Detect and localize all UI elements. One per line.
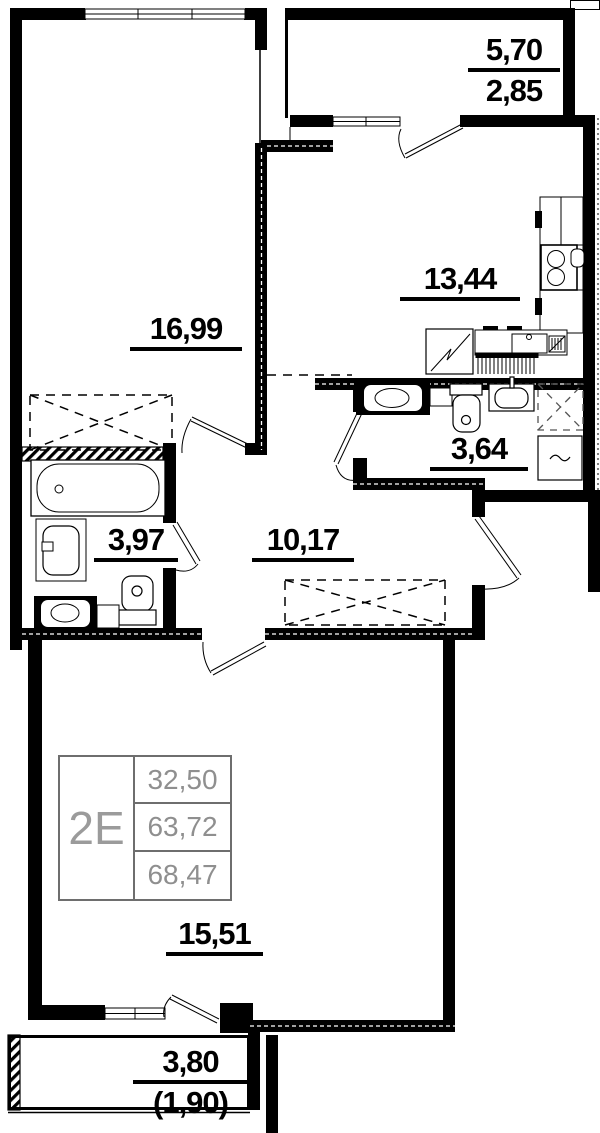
unit-type: 2E — [60, 757, 135, 899]
balcony-bottom-label: 3,80 (1,90) — [133, 1046, 248, 1118]
legend-living-area: 32,50 — [135, 757, 230, 804]
kitchen-sink-right-icon — [571, 249, 584, 267]
area-value: 3,64 — [451, 431, 507, 466]
label-underline — [430, 467, 528, 471]
area-label-room-bottom: 15,51 — [166, 918, 263, 956]
area-value: 13,44 — [424, 261, 497, 296]
balcony-reduced: (1,90) — [153, 1085, 228, 1120]
door-room-bottom — [203, 642, 266, 675]
area-value: 10,17 — [267, 522, 340, 557]
toilet-bath-icon — [119, 576, 156, 625]
kitchen-counter-bottom — [475, 330, 567, 355]
balcony-reduced: 2,85 — [486, 73, 542, 108]
door-room-top — [182, 417, 252, 453]
label-underline — [130, 347, 242, 351]
wardrobe-dashed-room-top — [30, 395, 172, 450]
area-value: 15,51 — [178, 916, 251, 951]
door-entrance — [475, 516, 521, 589]
window-room-top — [85, 9, 245, 19]
radiator-icon — [476, 353, 538, 374]
water-heater — [538, 436, 582, 480]
balcony-total: 3,80 — [162, 1044, 218, 1079]
fridge-icon — [426, 329, 473, 374]
area-value: 16,99 — [150, 311, 223, 346]
floor-plan: 16,99 13,44 3,64 3,97 10,17 15,51 5,70 2… — [0, 0, 600, 1133]
window-balcony-top — [333, 117, 400, 126]
area-label-room-top: 16,99 — [130, 313, 242, 351]
area-label-bathroom: 3,97 — [94, 524, 178, 562]
label-underline — [400, 297, 520, 301]
fraction-line — [133, 1080, 248, 1084]
area-label-wc: 3,64 — [430, 433, 528, 471]
balcony-total: 5,70 — [486, 32, 542, 67]
area-label-hall: 10,17 — [252, 524, 354, 562]
wardrobe-dashed-hall — [285, 580, 445, 625]
fraction-line — [468, 68, 560, 72]
window-room-bottom — [105, 1008, 165, 1019]
washbasin-bath-icon — [36, 519, 86, 581]
label-underline — [94, 558, 178, 562]
label-underline — [252, 558, 354, 562]
area-value: 3,97 — [108, 522, 164, 557]
toilet-wc-icon — [450, 384, 482, 432]
area-label-kitchen: 13,44 — [400, 263, 520, 301]
bathtub-icon — [31, 460, 165, 516]
door-balcony-top — [399, 124, 463, 158]
door-balcony-bottom — [164, 995, 219, 1023]
floor-plan-drawing — [0, 0, 600, 1133]
legend-unit-area: 63,72 — [135, 804, 230, 851]
legend-total-area: 68,47 — [135, 852, 230, 899]
balcony-top-label: 5,70 2,85 — [468, 34, 560, 106]
unit-legend-table: 2E 32,50 63,72 68,47 — [58, 755, 232, 901]
label-underline — [166, 952, 263, 956]
washing-machine-bath-icon — [34, 596, 119, 630]
shower-dashed — [538, 384, 583, 430]
